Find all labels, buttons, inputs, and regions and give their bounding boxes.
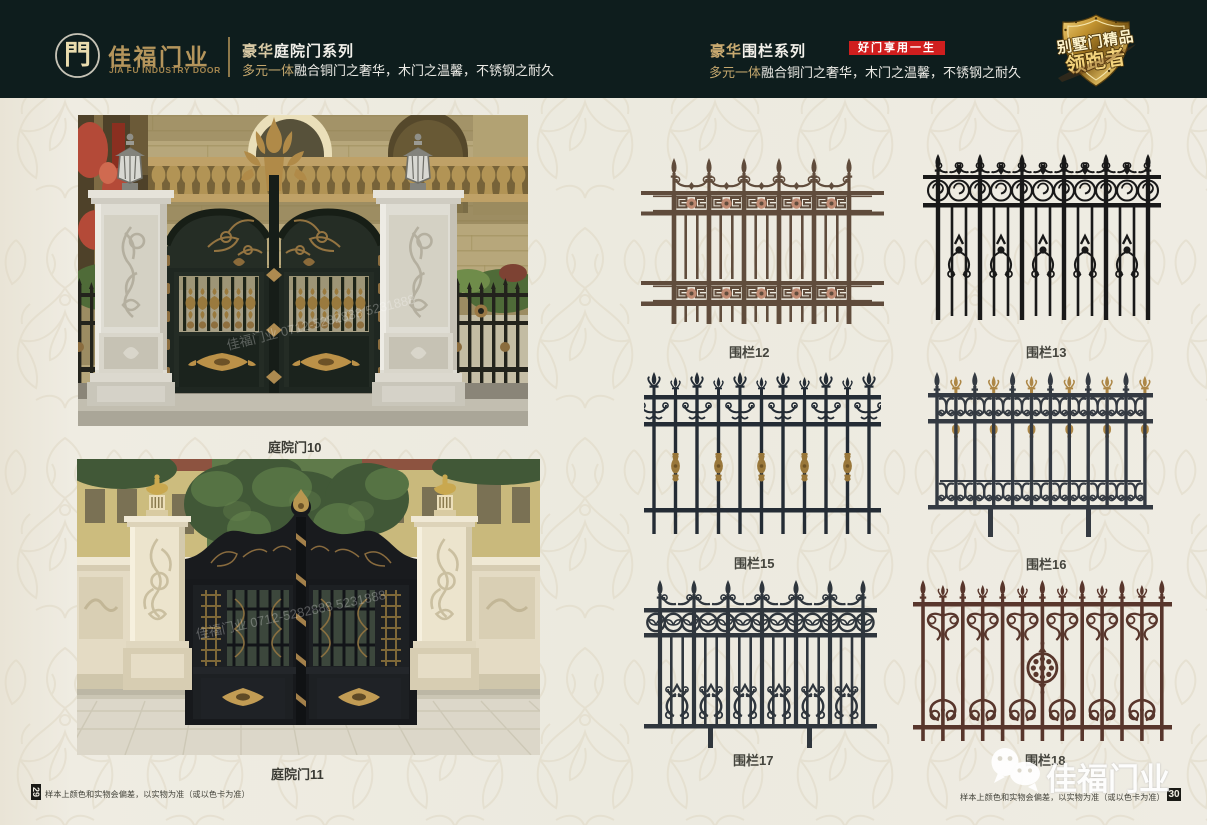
svg-text:門: 門: [64, 40, 91, 70]
